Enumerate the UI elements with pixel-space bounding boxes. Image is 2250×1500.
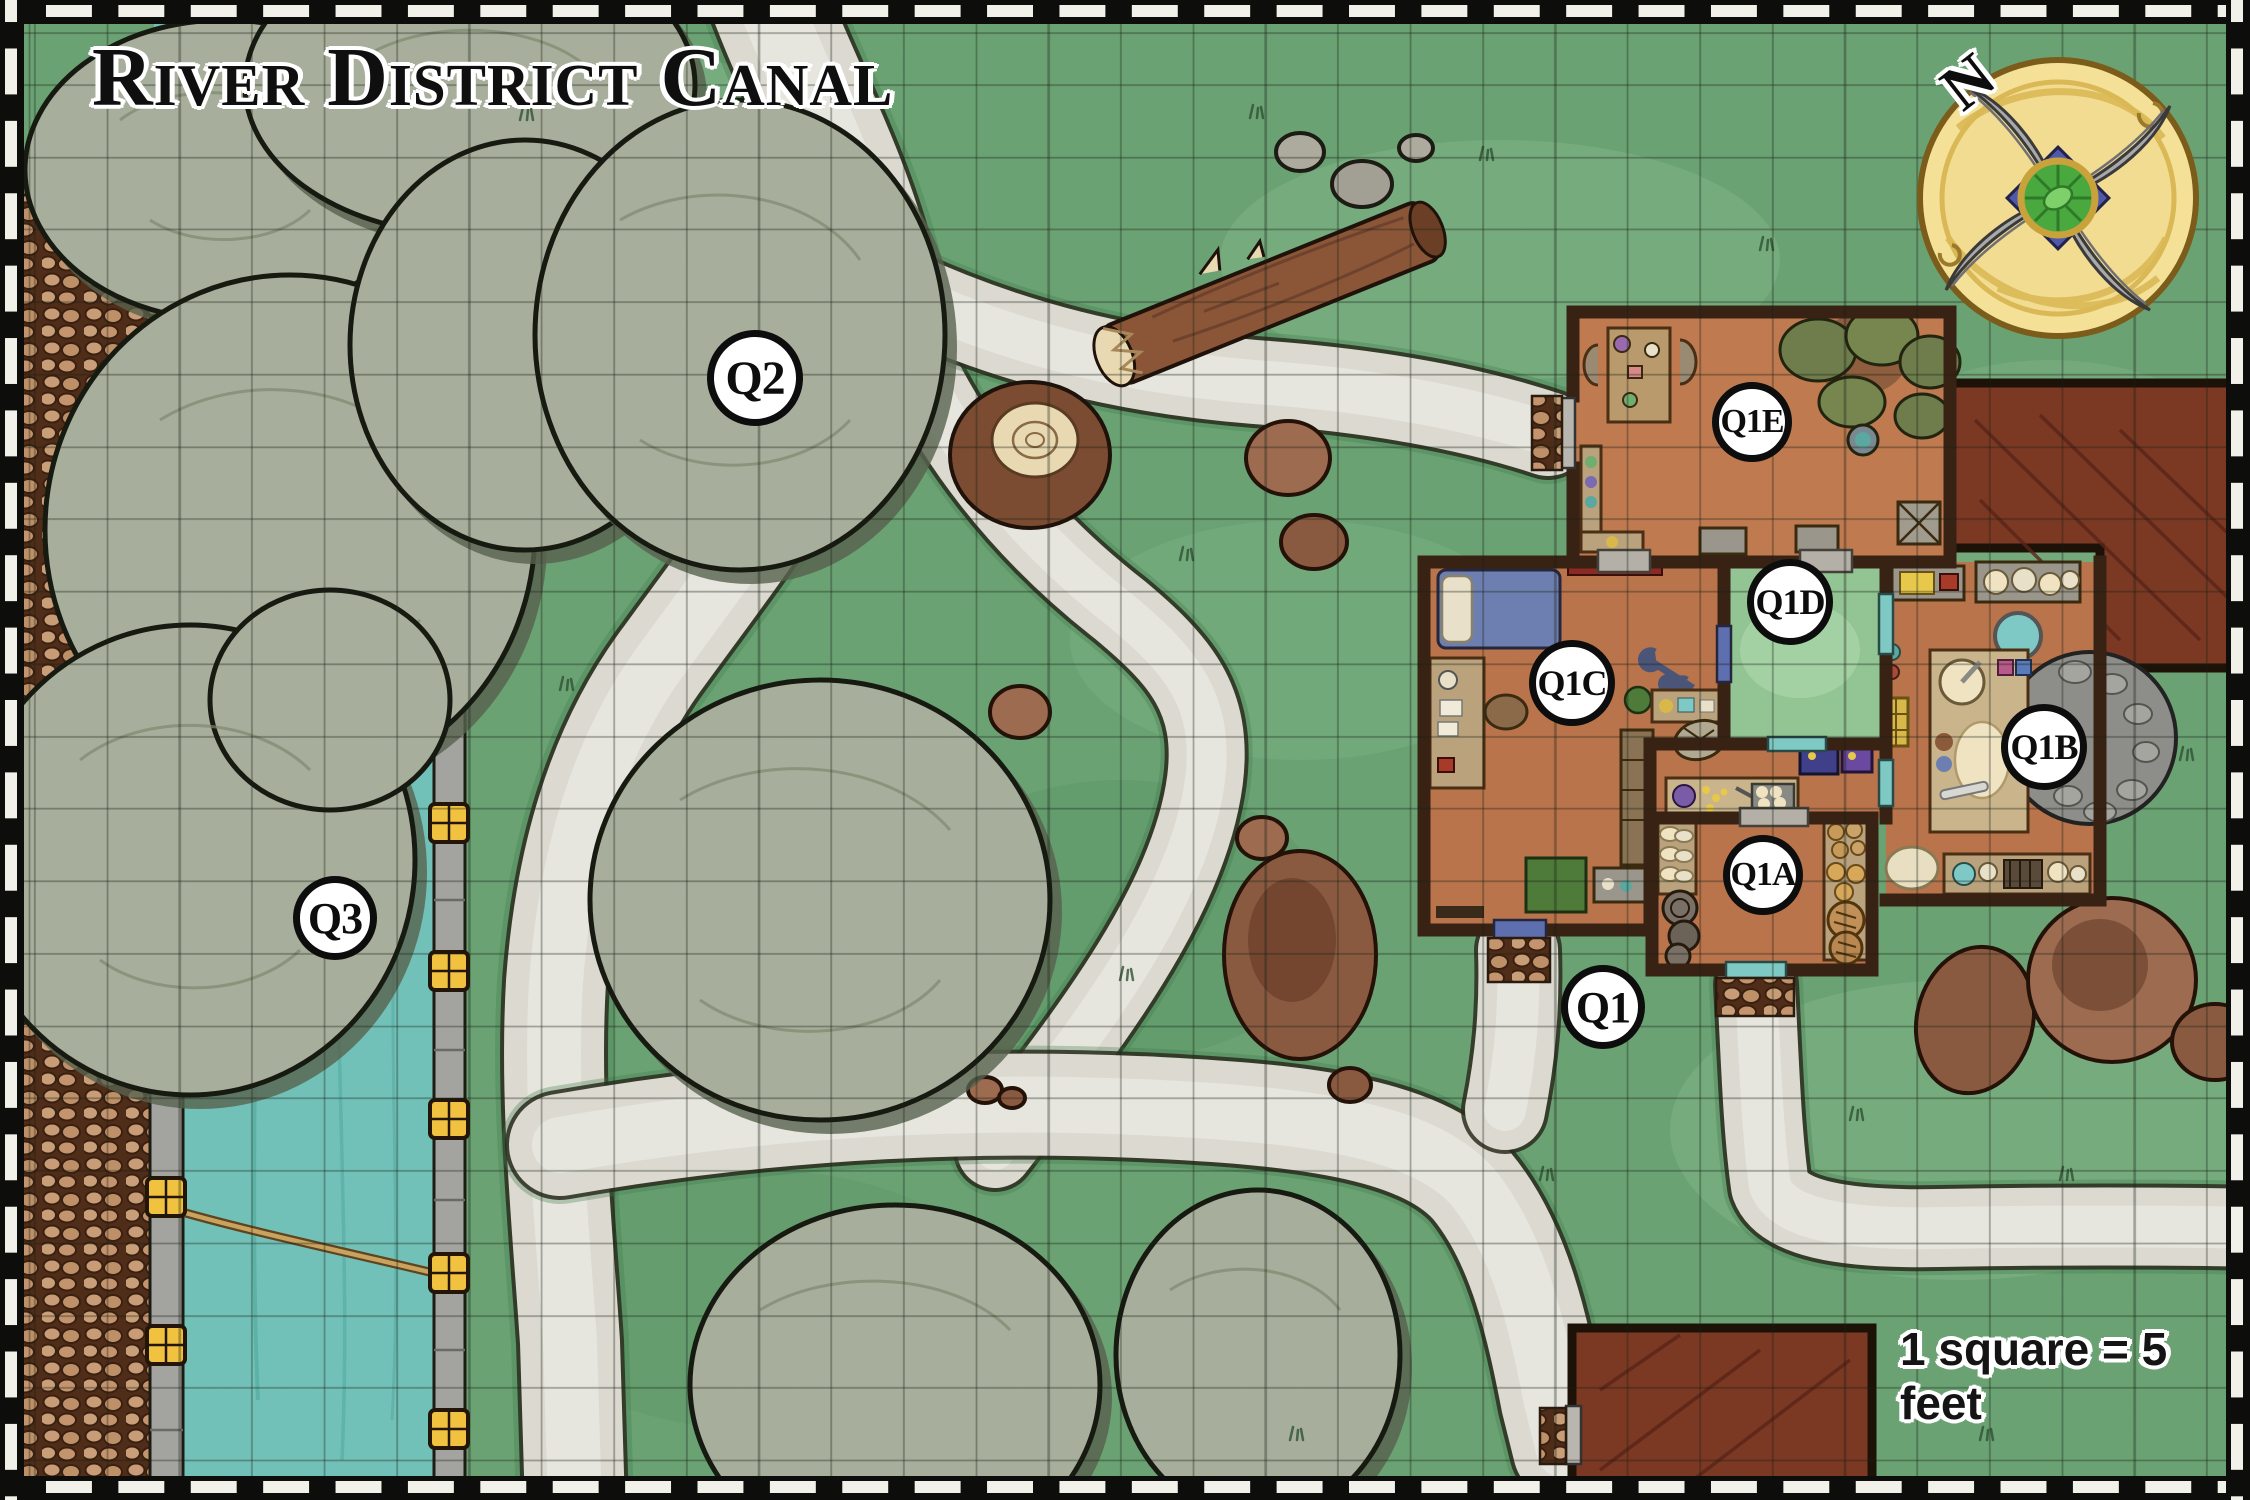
- plant: [1625, 687, 1651, 713]
- door-q1d-west: [1717, 626, 1731, 682]
- map-border-top: [0, 0, 2250, 24]
- label-q1e-text: Q1E: [1720, 403, 1783, 441]
- label-q1b-text: Q1B: [2010, 726, 2077, 768]
- label-q2-text: Q2: [725, 351, 784, 406]
- wood-deck-south: [1572, 1328, 1872, 1500]
- battle-map: River District Canal 1 square = 5 feet N…: [0, 0, 2250, 1500]
- label-q1: Q1: [1561, 965, 1645, 1049]
- map-title: River District Canal: [92, 36, 893, 120]
- label-q1d-text: Q1D: [1756, 581, 1825, 623]
- label-q1d: Q1D: [1747, 559, 1833, 645]
- scale-note: 1 square = 5 feet: [1900, 1322, 2250, 1430]
- label-q1e: Q1E: [1712, 382, 1792, 462]
- steps: [1740, 808, 1808, 826]
- label-q1c-text: Q1C: [1538, 662, 1607, 704]
- label-q1c: Q1C: [1529, 640, 1615, 726]
- label-q1b: Q1B: [2001, 704, 2087, 790]
- label-q2: Q2: [707, 330, 803, 426]
- tree-canopy: [1116, 1190, 1400, 1500]
- map-border-bottom: [0, 1476, 2250, 1500]
- barrel: [1663, 891, 1697, 925]
- tree-stump: [950, 382, 1110, 528]
- rock: [1246, 421, 1330, 495]
- door-q1d-east: [1879, 594, 1893, 654]
- door-q1d-south: [1768, 737, 1826, 751]
- label-q1a-text: Q1A: [1731, 856, 1796, 894]
- label-q3: Q3: [293, 876, 377, 960]
- map-border-right: [2226, 0, 2250, 1500]
- map-border-left: [0, 0, 24, 1500]
- label-q1-text: Q1: [1576, 982, 1630, 1033]
- label-q1a: Q1A: [1723, 835, 1803, 915]
- green-mat: [1526, 858, 1586, 912]
- tree-canopy: [590, 680, 1050, 1120]
- door-south-building: [1566, 1406, 1581, 1464]
- door-q1b-west: [1879, 760, 1893, 806]
- door-q1a-south: [1726, 962, 1786, 978]
- label-q3-text: Q3: [308, 893, 362, 944]
